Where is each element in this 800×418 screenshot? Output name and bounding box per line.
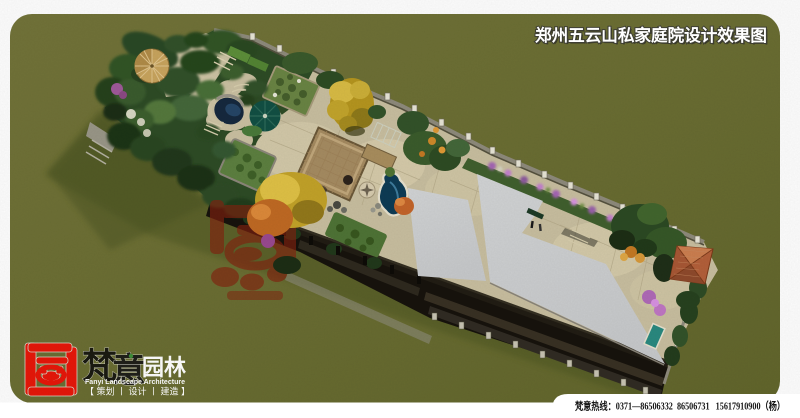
svg-text:郑州五云山私家庭院设计效果图: 郑州五云山私家庭院设计效果图: [535, 25, 767, 45]
svg-text:梵意热线：0371—86506332 86506731: 梵意热线：0371—86506332 86506731 15617910900（…: [575, 400, 785, 413]
